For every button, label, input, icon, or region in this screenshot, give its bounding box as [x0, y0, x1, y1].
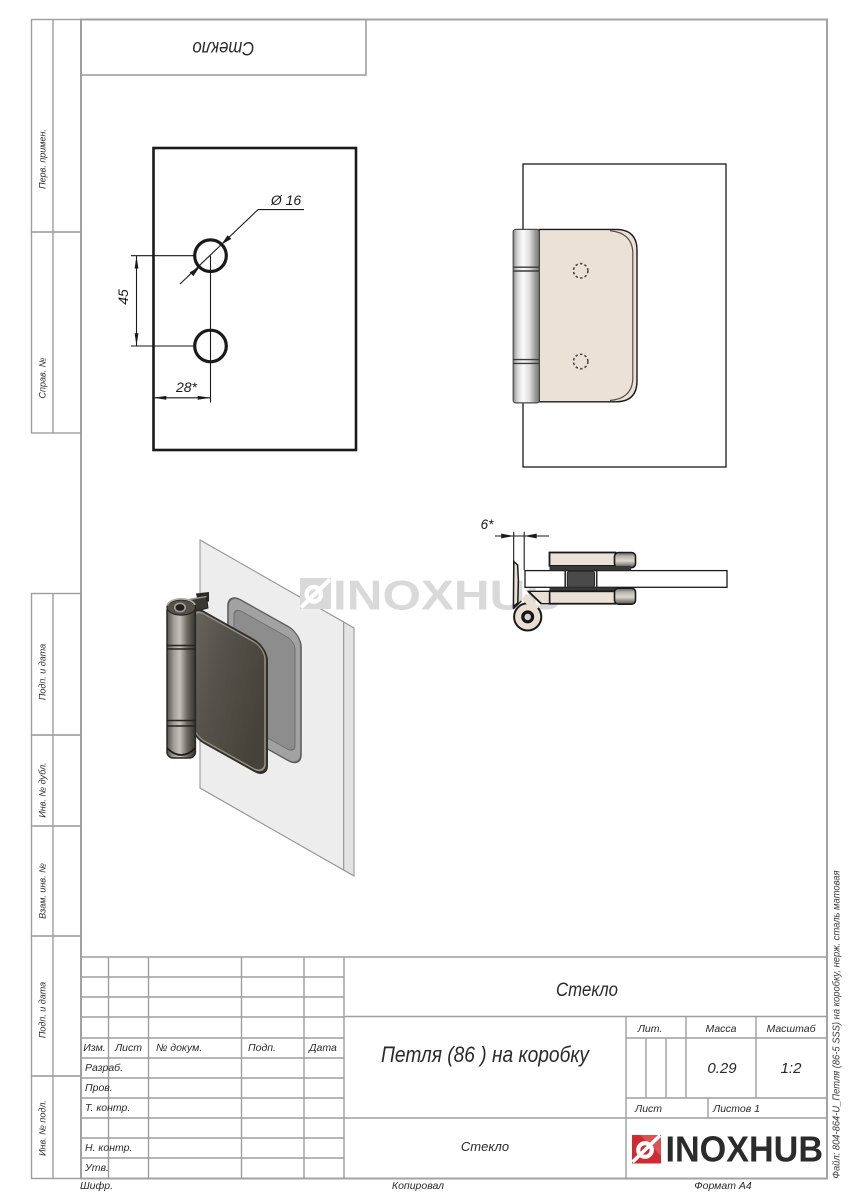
svg-text:Стекло: Стекло — [556, 980, 618, 1001]
svg-text:1:2: 1:2 — [781, 1060, 803, 1077]
svg-text:Подп.: Подп. — [248, 1042, 276, 1054]
svg-text:6*: 6* — [481, 517, 495, 532]
svg-text:Инв. № дубл.: Инв. № дубл. — [38, 762, 48, 817]
svg-text:Шифр.: Шифр. — [80, 1180, 113, 1192]
svg-text:Масса: Масса — [705, 1023, 736, 1035]
svg-text:Инв. № подл.: Инв. № подл. — [38, 1100, 48, 1156]
svg-text:INOXHUB: INOXHUB — [666, 1129, 824, 1170]
svg-text:Лист: Лист — [634, 1103, 662, 1115]
svg-text:Лит.: Лит. — [637, 1023, 663, 1035]
svg-text:28*: 28* — [175, 379, 198, 395]
svg-text:0.29: 0.29 — [707, 1060, 737, 1077]
svg-text:№ докум.: № докум. — [156, 1042, 202, 1054]
svg-text:Файл: 804-864-U_Петля (86-5 SS: Файл: 804-864-U_Петля (86-5 SSS) на коро… — [831, 870, 843, 1179]
svg-text:Т. контр.: Т. контр. — [85, 1102, 130, 1114]
svg-text:Утв.: Утв. — [84, 1162, 109, 1174]
svg-text:Ø 16: Ø 16 — [270, 192, 302, 208]
svg-text:Перв. примен.: Перв. примен. — [38, 129, 48, 189]
svg-text:Взам. инв. №: Взам. инв. № — [38, 863, 48, 919]
svg-text:Изм.: Изм. — [83, 1042, 105, 1054]
svg-text:Справ. №: Справ. № — [38, 357, 48, 398]
svg-text:Дата: Дата — [308, 1042, 337, 1054]
svg-text:Копировал: Копировал — [392, 1180, 444, 1192]
svg-text:Стекло: Стекло — [192, 37, 254, 58]
svg-text:Формат А4: Формат А4 — [694, 1180, 752, 1192]
svg-text:45: 45 — [115, 289, 131, 305]
svg-text:Подп. и дата: Подп. и дата — [38, 644, 48, 700]
svg-text:Пров.: Пров. — [85, 1082, 113, 1094]
svg-text:Подп. и дата: Подп. и дата — [38, 982, 48, 1038]
svg-text:Масштаб: Масштаб — [766, 1023, 816, 1035]
svg-text:Петля (86 ) на коробку: Петля (86 ) на коробку — [381, 1042, 591, 1067]
svg-text:Н. контр.: Н. контр. — [85, 1142, 132, 1154]
svg-text:Стекло: Стекло — [461, 1139, 509, 1154]
svg-text:Разраб.: Разраб. — [85, 1062, 123, 1074]
svg-text:Листов 1: Листов 1 — [712, 1103, 760, 1115]
svg-text:Лист: Лист — [114, 1042, 142, 1054]
